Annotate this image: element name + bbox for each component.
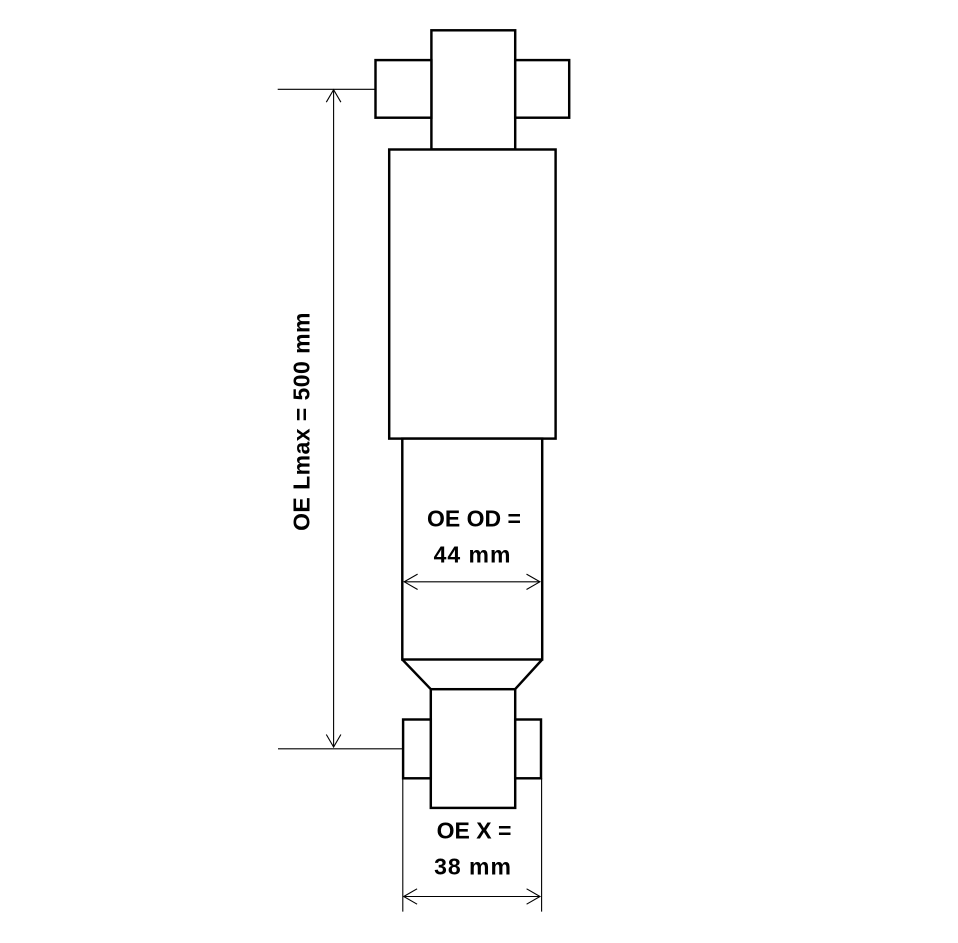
svg-text:44 mm: 44 mm — [434, 542, 512, 568]
svg-text:OE X =: OE X = — [437, 818, 512, 844]
svg-text:OE Lmax = 500 mm: OE Lmax = 500 mm — [289, 312, 315, 531]
svg-text:38 mm: 38 mm — [434, 854, 512, 880]
svg-text:OE OD =: OE OD = — [427, 506, 521, 532]
